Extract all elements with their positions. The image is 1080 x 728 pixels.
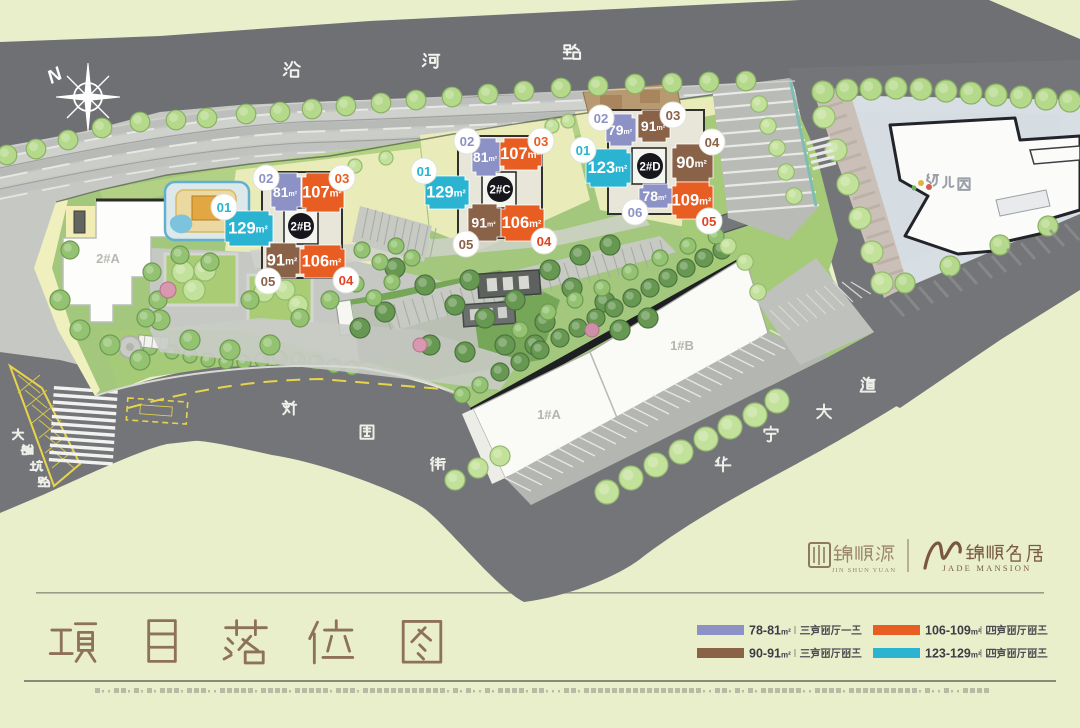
svg-text:05: 05 (261, 274, 276, 289)
svg-text:2#C: 2#C (489, 185, 510, 197)
svg-text:1#B: 1#B (670, 338, 694, 353)
svg-text:02: 02 (594, 111, 609, 126)
svg-text:2#B: 2#B (290, 222, 311, 234)
svg-text:04: 04 (537, 234, 552, 249)
svg-text:01: 01 (417, 164, 432, 179)
svg-text:05: 05 (459, 237, 474, 252)
svg-text:JADE MANSION: JADE MANSION (943, 563, 1032, 573)
svg-text:04: 04 (705, 135, 720, 150)
svg-text:04: 04 (339, 273, 354, 288)
svg-text:02: 02 (259, 171, 274, 186)
svg-text:2#A: 2#A (96, 251, 120, 266)
svg-text:JIN SHUN YUAN: JIN SHUN YUAN (832, 567, 896, 574)
svg-text:02: 02 (460, 134, 475, 149)
svg-text:03: 03 (335, 171, 350, 186)
svg-text:01: 01 (217, 200, 232, 215)
svg-text:03: 03 (534, 134, 549, 149)
svg-text:06: 06 (628, 205, 643, 220)
svg-text:03: 03 (666, 108, 681, 123)
svg-text:05: 05 (702, 214, 717, 229)
svg-text:01: 01 (576, 143, 591, 158)
svg-text:2#D: 2#D (639, 162, 660, 174)
svg-text:1#A: 1#A (537, 407, 561, 422)
